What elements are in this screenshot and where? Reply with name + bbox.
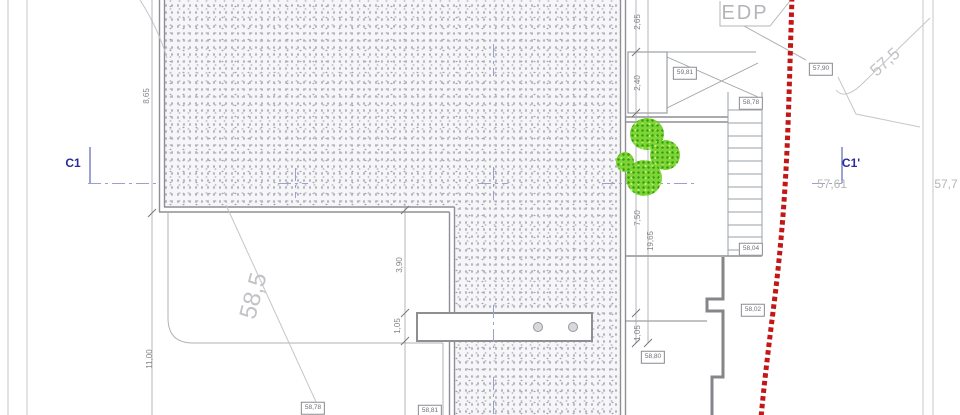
spot-elevation-box: 58,04 bbox=[739, 243, 763, 256]
spot-elevation-box: 58,81 bbox=[418, 405, 442, 415]
tree-foliage-icon bbox=[616, 152, 634, 172]
spot-elevation-box: 58,78 bbox=[301, 402, 325, 415]
spot-elevation-box: 58,02 bbox=[741, 304, 765, 317]
path-edge bbox=[168, 213, 443, 415]
spot-elevation-box: 58,78 bbox=[739, 97, 763, 110]
site-plan-drawing: EDP C1 C1' 58,5 57,5 57,61 57,7 8,65 11,… bbox=[0, 0, 960, 415]
dimension-label-2-40: 2,40 bbox=[634, 75, 642, 91]
boundary-red-dashed-line bbox=[761, 0, 792, 415]
tree-symbol bbox=[614, 116, 684, 200]
dimension-label-3-90: 3,90 bbox=[396, 257, 404, 273]
wall-outline bbox=[159, 0, 762, 415]
spot-elevation-box: 57,90 bbox=[809, 63, 833, 76]
dimension-label-8-65: 8,65 bbox=[143, 88, 151, 104]
dimension-label-2-65: 2,65 bbox=[634, 14, 642, 30]
dimension-ticks bbox=[148, 48, 652, 347]
spot-elevation-box: 58,80 bbox=[641, 351, 665, 364]
contour-label-57-61: 57,61 bbox=[817, 178, 847, 190]
dimension-label-1-05-right: 1,05 bbox=[634, 325, 642, 341]
dimension-label-11-00: 11,00 bbox=[146, 349, 154, 368]
dimension-label-1-05-notch: 1,05 bbox=[394, 318, 402, 334]
edp-utility-label: EDP bbox=[721, 3, 768, 23]
staircase bbox=[728, 92, 762, 256]
section-marker-c1-prime: C1' bbox=[842, 157, 860, 169]
section-marker-c1: C1 bbox=[65, 157, 80, 169]
dimension-label-7-50: 7,50 bbox=[634, 210, 642, 226]
spot-elevation-box: 59,81 bbox=[673, 67, 697, 80]
contour-label-57-7: 57,7 bbox=[934, 178, 957, 190]
dimension-label-19-65: 19,65 bbox=[647, 231, 655, 251]
